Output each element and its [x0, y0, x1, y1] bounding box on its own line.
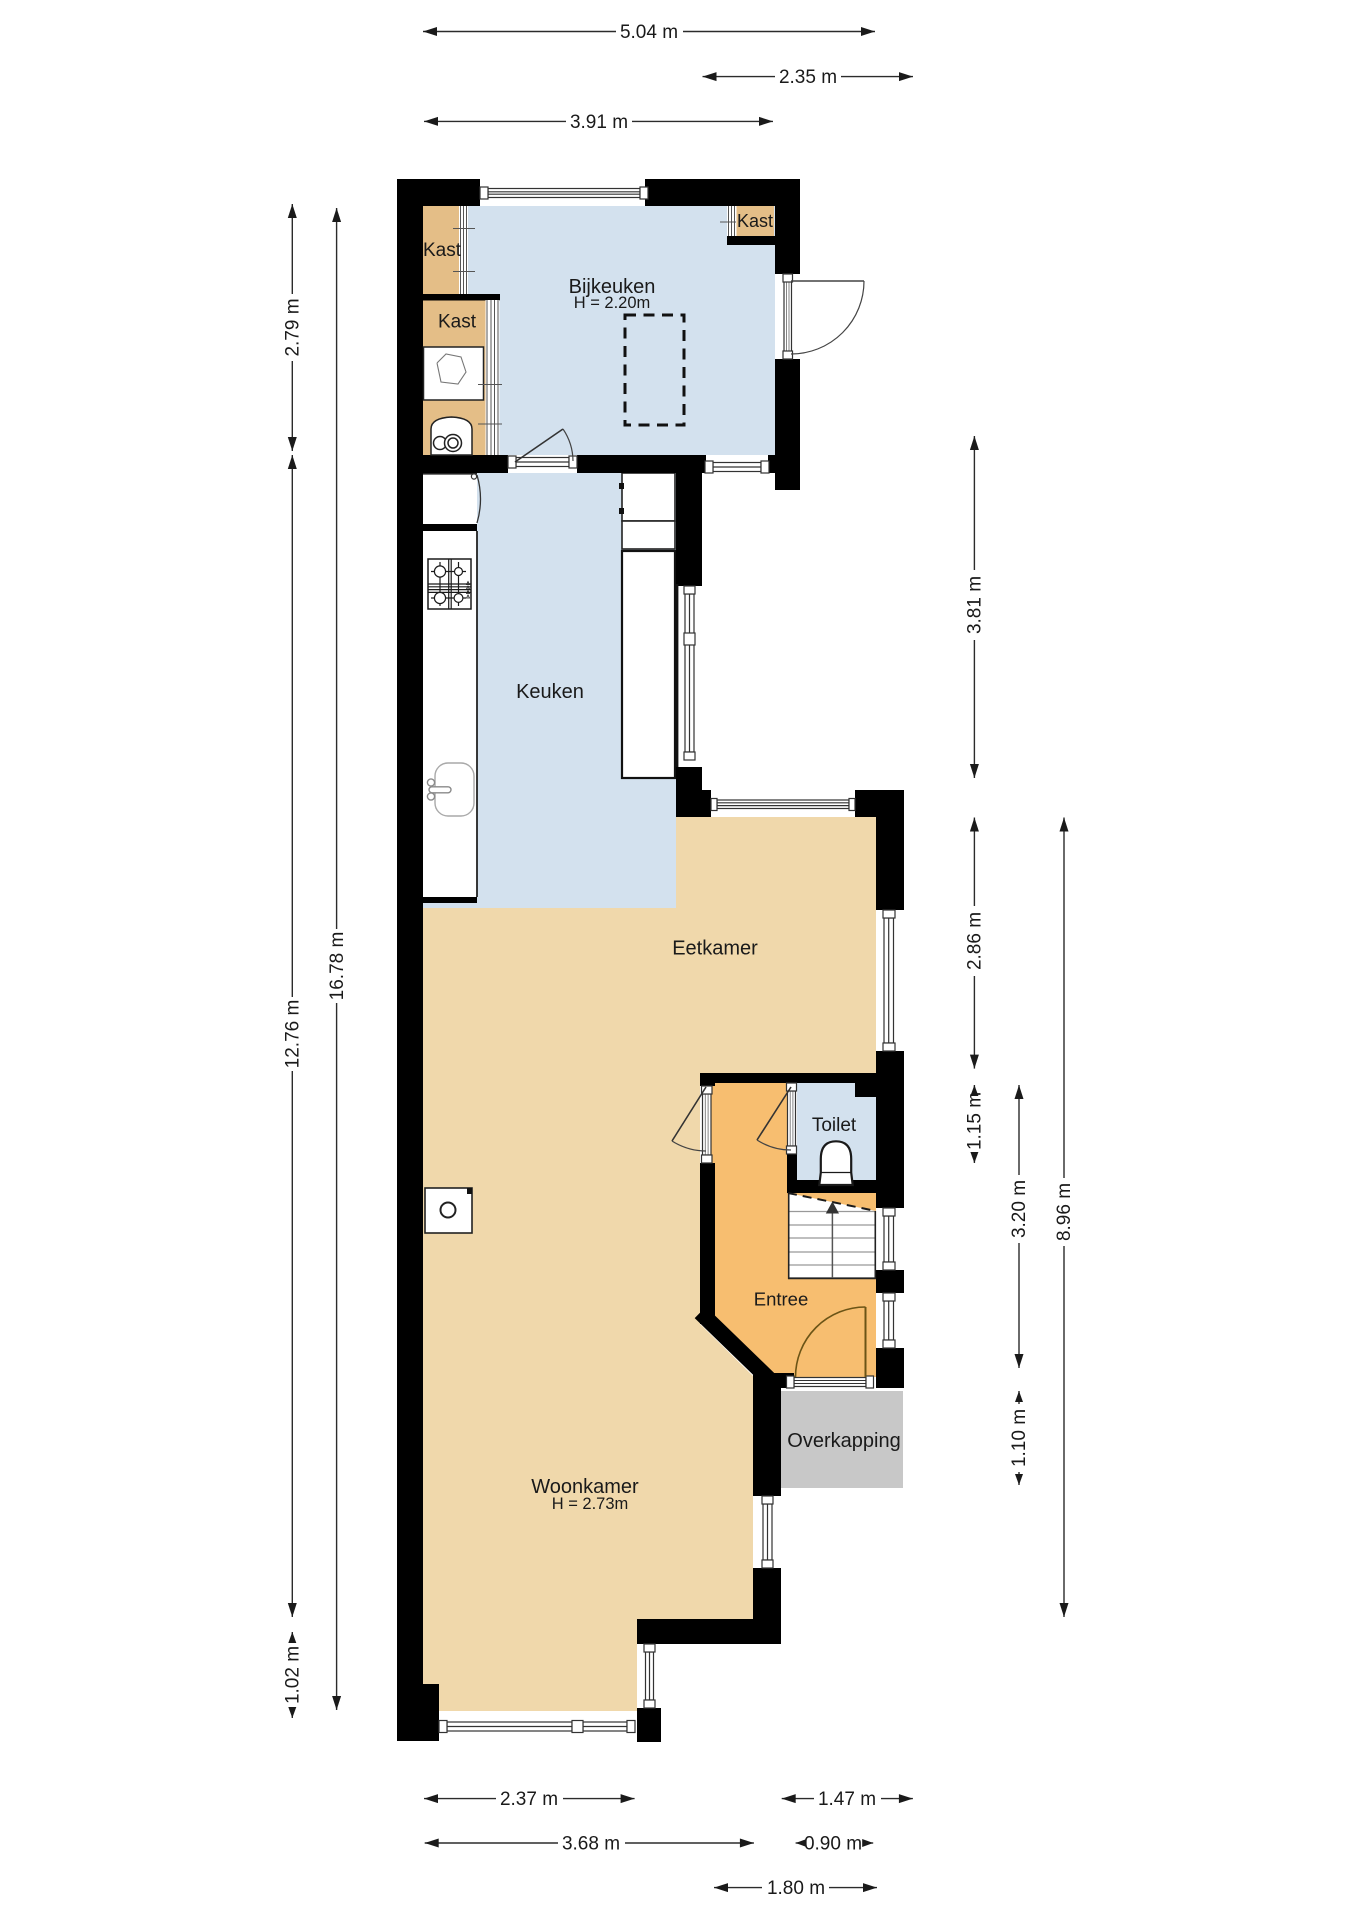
svg-text:5.04 m: 5.04 m [620, 22, 678, 43]
svg-text:3.81 m: 3.81 m [965, 576, 986, 634]
svg-text:12.76 m: 12.76 m [283, 1000, 304, 1069]
svg-text:3.91 m: 3.91 m [570, 112, 628, 133]
svg-text:3.20 m: 3.20 m [1009, 1180, 1030, 1238]
svg-text:0.90 m: 0.90 m [804, 1834, 862, 1855]
svg-text:Keuken: Keuken [516, 681, 584, 703]
svg-text:2.79 m: 2.79 m [283, 298, 304, 356]
svg-text:1.15 m: 1.15 m [965, 1092, 986, 1150]
svg-text:H = 2.20m: H = 2.20m [574, 294, 651, 312]
svg-text:1.10 m: 1.10 m [1009, 1409, 1030, 1467]
svg-text:3.68 m: 3.68 m [562, 1834, 620, 1855]
svg-text:Toilet: Toilet [812, 1115, 857, 1136]
svg-text:Entree: Entree [754, 1289, 809, 1310]
svg-text:8.96 m: 8.96 m [1054, 1183, 1075, 1241]
svg-text:1.02 m: 1.02 m [283, 1646, 304, 1704]
svg-text:2.35 m: 2.35 m [779, 67, 837, 88]
svg-text:1.47 m: 1.47 m [818, 1789, 876, 1810]
svg-text:16.78 m: 16.78 m [327, 932, 348, 1001]
svg-text:2.86 m: 2.86 m [965, 912, 986, 970]
svg-text:2.37 m: 2.37 m [500, 1789, 558, 1810]
svg-text:Kast: Kast [737, 211, 773, 231]
svg-text:Eetkamer: Eetkamer [672, 938, 758, 960]
svg-text:Overkapping: Overkapping [787, 1430, 900, 1452]
svg-text:H = 2.73m: H = 2.73m [552, 1495, 629, 1513]
svg-text:Kast: Kast [438, 312, 477, 333]
svg-text:1.80 m: 1.80 m [767, 1878, 825, 1899]
svg-text:Kast: Kast [423, 240, 462, 261]
